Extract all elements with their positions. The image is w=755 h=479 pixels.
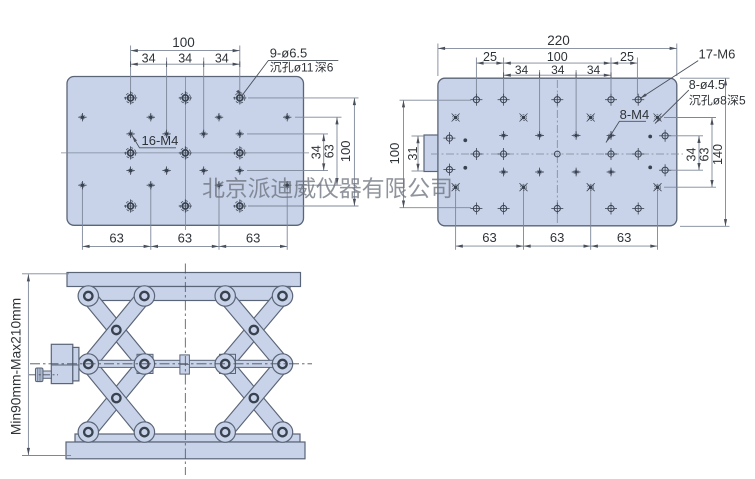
svg-text:34: 34 [309,145,323,159]
svg-text:Min90mm-Max210mm: Min90mm-Max210mm [9,298,24,435]
svg-text:63: 63 [550,230,564,245]
svg-text:100: 100 [338,140,353,162]
svg-text:25: 25 [620,50,634,64]
svg-text:63: 63 [178,230,192,245]
svg-text:63: 63 [617,230,631,245]
svg-text:34: 34 [587,63,601,77]
svg-text:63: 63 [246,230,260,245]
svg-text:34: 34 [551,63,565,77]
svg-text:9-ø6.5: 9-ø6.5 [270,46,308,61]
svg-text:100: 100 [387,143,402,165]
svg-text:31: 31 [406,147,420,161]
svg-text:63: 63 [323,144,337,158]
svg-text:34: 34 [142,52,156,66]
svg-text:17-M6: 17-M6 [699,47,736,62]
svg-text:63: 63 [697,148,711,162]
svg-text:34: 34 [515,63,529,77]
svg-text:6: 6 [327,61,334,75]
svg-text:140: 140 [711,144,725,165]
svg-text:5: 5 [739,94,746,108]
svg-text:16-M4: 16-M4 [142,133,179,148]
svg-text:220: 220 [547,33,570,48]
svg-text:ø8: ø8 [713,94,727,108]
svg-text:100: 100 [172,35,195,50]
svg-text:8-M4: 8-M4 [620,107,650,122]
svg-text:63: 63 [109,230,123,245]
svg-text:34: 34 [178,52,192,66]
svg-text:63: 63 [482,230,496,245]
svg-text:25: 25 [483,50,497,64]
svg-text:34: 34 [684,148,698,162]
svg-text:34: 34 [215,52,229,66]
svg-text:8-ø4.5: 8-ø4.5 [689,78,725,92]
svg-text:ø11: ø11 [294,61,314,75]
